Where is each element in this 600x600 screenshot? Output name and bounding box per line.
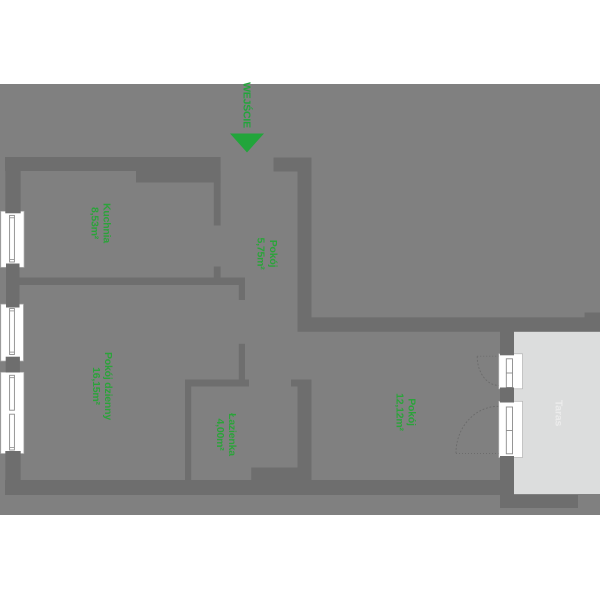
svg-text:4,00m²: 4,00m²: [214, 418, 226, 451]
svg-text:5,75m²: 5,75m²: [255, 237, 267, 270]
svg-text:Kuchnia: Kuchnia: [101, 203, 113, 243]
svg-text:Taras: Taras: [553, 400, 565, 427]
svg-text:8,53m²: 8,53m²: [89, 207, 101, 240]
svg-text:Pokój dzienny: Pokój dzienny: [102, 352, 114, 420]
svg-text:Łazienka: Łazienka: [226, 413, 238, 456]
svg-text:Pokój: Pokój: [406, 398, 418, 426]
svg-text:Pokój: Pokój: [267, 240, 279, 268]
svg-text:12,12m²: 12,12m²: [394, 393, 406, 431]
svg-text:WEJŚCIE: WEJŚCIE: [241, 82, 254, 128]
svg-text:16,15m²: 16,15m²: [90, 367, 102, 405]
